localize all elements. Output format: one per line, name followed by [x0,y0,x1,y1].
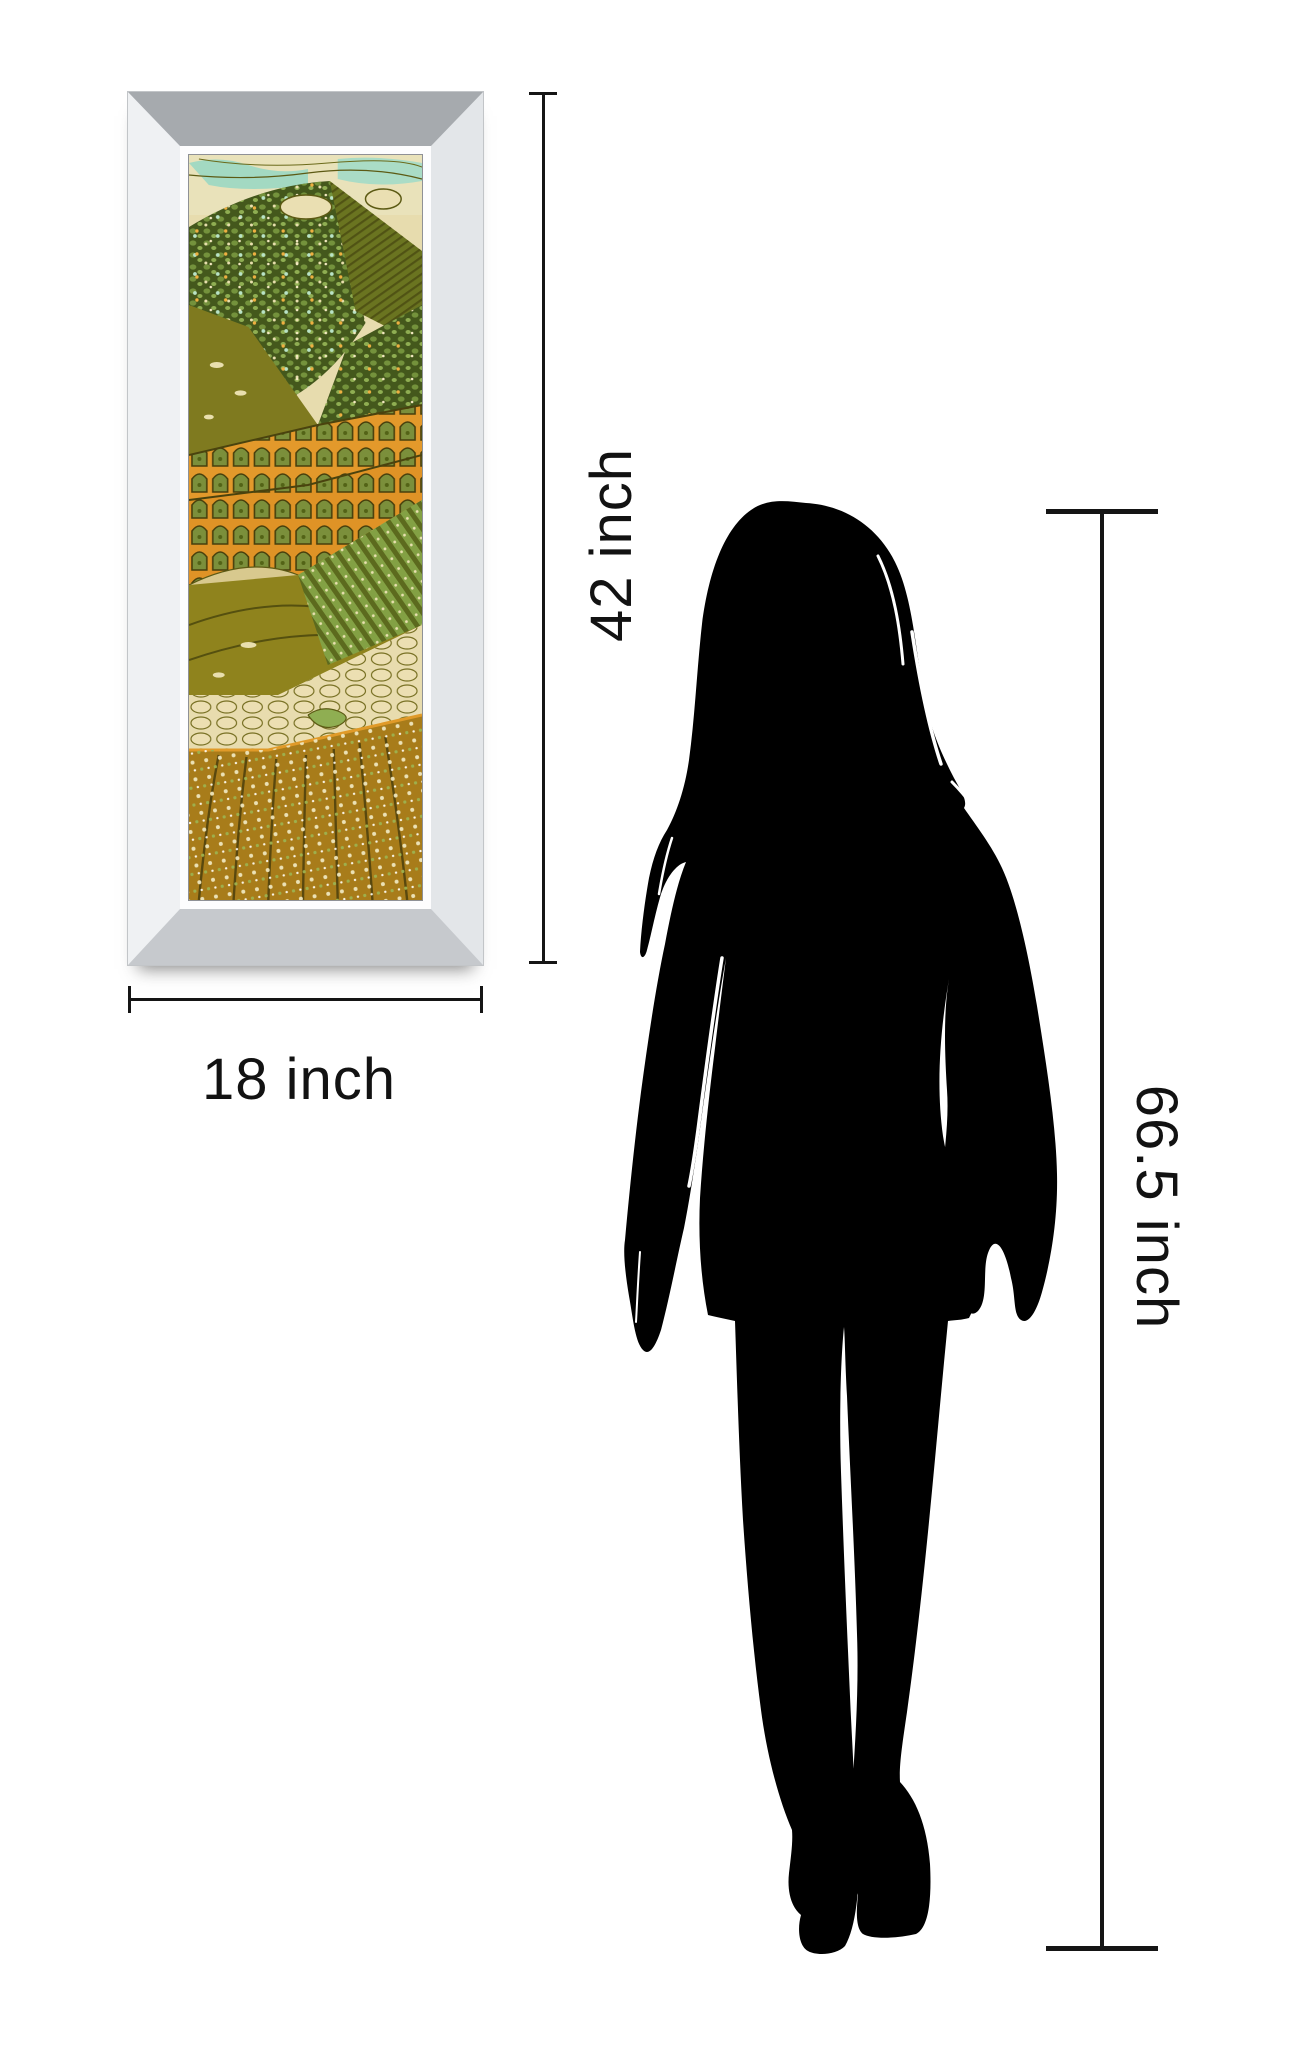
person-silhouette [0,0,1296,2048]
product-size-comparison-canvas: 42 inch 18 inch 66.5 inch [0,0,1296,2048]
person-silhouette-body [624,501,1057,1954]
